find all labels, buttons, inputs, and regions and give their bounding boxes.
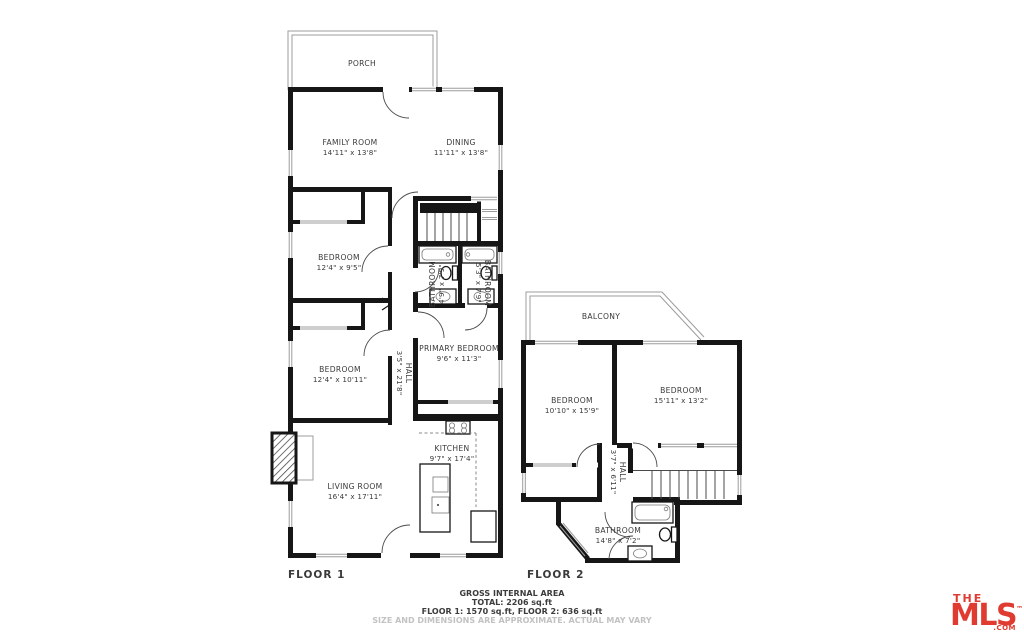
room-label-bedroom1: BEDROOM 12'4" x 9'5" [317, 253, 362, 272]
svg-text:KITCHEN: KITCHEN [434, 444, 469, 453]
svg-text:FAMILY ROOM: FAMILY ROOM [322, 138, 377, 147]
svg-text:HALL: HALL [618, 462, 627, 483]
svg-text:BEDROOM: BEDROOM [551, 396, 593, 405]
svg-text:BATHROOM: BATHROOM [428, 261, 437, 307]
svg-text:9'7" x 17'4": 9'7" x 17'4" [430, 454, 475, 463]
floor1-outer-walls [288, 87, 503, 558]
svg-text:BEDROOM: BEDROOM [318, 253, 360, 262]
room-label-hall1: HALL 3'5" x 21'8" [395, 351, 413, 396]
svg-text:BATHROOM: BATHROOM [483, 260, 492, 306]
floor2-staircase [633, 471, 737, 500]
svg-text:10'10" x 15'9": 10'10" x 15'9" [545, 406, 599, 415]
svg-text:BATHROOM: BATHROOM [595, 526, 641, 535]
room-label-bedroom2: BEDROOM 12'4" x 10'11" [313, 365, 367, 384]
floorplan-page: PORCH FAMILY ROOM 14'11" x 13'8" DINING … [0, 0, 1024, 640]
themls-logo: THE MLS™ .COM [950, 593, 1016, 632]
svg-text:3'5" x 21'8": 3'5" x 21'8" [395, 351, 404, 396]
svg-text:12'4" x 9'5": 12'4" x 9'5" [317, 263, 362, 272]
svg-text:BEDROOM: BEDROOM [319, 365, 361, 374]
svg-text:5'3" x 7'9": 5'3" x 7'9" [474, 263, 483, 303]
floorplan-drawing: PORCH FAMILY ROOM 14'11" x 13'8" DINING … [0, 0, 1024, 640]
svg-text:11'11" x 13'8": 11'11" x 13'8" [434, 148, 488, 157]
room-label-f2-bedroom-right: BEDROOM 15'11" x 13'2" [654, 386, 708, 405]
floor1-plan: PORCH FAMILY ROOM 14'11" x 13'8" DINING … [272, 31, 504, 581]
svg-text:12'4" x 10'11": 12'4" x 10'11" [313, 375, 367, 384]
floor2-plan: BALCONY BEDROOM 10'10" x 15'9" BEDROOM 1… [521, 292, 743, 581]
svg-text:DINING: DINING [446, 138, 475, 147]
svg-text:BEDROOM: BEDROOM [660, 386, 702, 395]
room-label-porch: PORCH [348, 59, 376, 68]
room-label-primary-bedroom: PRIMARY BEDROOM 9'6" x 11'3" [419, 344, 499, 363]
floor1-staircase [427, 213, 467, 241]
room-label-bathroom2: BATHROOM 5'3" x 7'9" [474, 260, 492, 306]
svg-text:LIVING ROOM: LIVING ROOM [328, 482, 383, 491]
room-label-bathroom1: BATHROOM 4'9" x 7'9" [428, 261, 446, 307]
svg-text:PRIMARY BEDROOM: PRIMARY BEDROOM [419, 344, 499, 353]
svg-text:14'11" x 13'8": 14'11" x 13'8" [323, 148, 377, 157]
room-label-dining: DINING 11'11" x 13'8" [434, 138, 488, 157]
floor1-label: FLOOR 1 [288, 569, 345, 581]
logo-trademark: ™ [1016, 605, 1023, 613]
fireplace [272, 433, 313, 483]
room-label-f2-bedroom-left: BEDROOM 10'10" x 15'9" [545, 396, 599, 415]
footer-total: TOTAL: 2206 sq.ft [472, 598, 552, 607]
footer-title: GROSS INTERNAL AREA [459, 589, 565, 598]
room-label-balcony: BALCONY [582, 312, 620, 321]
footer-disclaimer: SIZE AND DIMENSIONS ARE APPROXIMATE. ACT… [372, 616, 652, 625]
svg-text:9'6" x 11'3": 9'6" x 11'3" [437, 354, 482, 363]
footer-area-summary: GROSS INTERNAL AREA TOTAL: 2206 sq.ft FL… [372, 589, 652, 625]
footer-floor-areas: FLOOR 1: 1570 sq.ft, FLOOR 2: 636 sq.ft [422, 607, 603, 616]
svg-text:3'7" x 6'11": 3'7" x 6'11" [609, 450, 618, 495]
room-label-kitchen: KITCHEN 9'7" x 17'4" [430, 444, 475, 463]
room-label-f2-bathroom: BATHROOM 14'8" x 7'2" [595, 526, 641, 545]
room-label-living-room: LIVING ROOM 16'4" x 17'11" [328, 482, 383, 501]
kitchen-fixtures [419, 421, 496, 542]
floor1-windows [288, 87, 504, 559]
svg-text:4'9" x 7'9": 4'9" x 7'9" [437, 264, 446, 304]
room-label-family-room: FAMILY ROOM 14'11" x 13'8" [322, 138, 377, 157]
svg-text:16'4" x 17'11": 16'4" x 17'11" [328, 492, 382, 501]
svg-text:15'11" x 13'2": 15'11" x 13'2" [654, 396, 708, 405]
floor2-label: FLOOR 2 [527, 569, 584, 581]
svg-text:HALL: HALL [404, 363, 413, 384]
svg-text:14'8" x 7'2": 14'8" x 7'2" [596, 536, 641, 545]
room-label-hall2: HALL 3'7" x 6'11" [609, 450, 627, 495]
